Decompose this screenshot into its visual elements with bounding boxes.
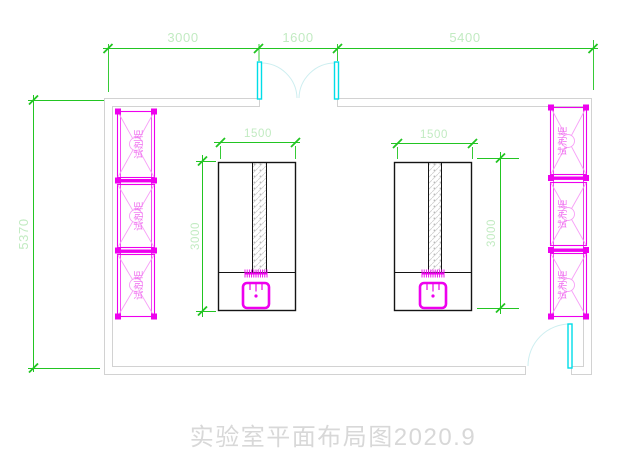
cabinet-post bbox=[583, 105, 589, 111]
cabinet-post bbox=[115, 314, 121, 320]
sink-faucets bbox=[250, 284, 262, 292]
cabinet-separator bbox=[118, 250, 154, 253]
cabinet-post bbox=[583, 314, 589, 320]
single-door-bottom-right bbox=[528, 324, 572, 368]
drawing-title: 实验室平面布局图2020.9 bbox=[190, 424, 476, 451]
cabinet-post bbox=[583, 175, 589, 181]
dim-extension-lines bbox=[109, 40, 594, 92]
left-wall bbox=[105, 98, 113, 375]
door-swing-arc bbox=[299, 63, 335, 98]
cabinet-post bbox=[548, 105, 554, 111]
cabinet-post bbox=[548, 314, 554, 320]
dim-text-top-right: 5400 bbox=[449, 30, 480, 45]
cabinet-post bbox=[115, 248, 121, 254]
sink-drain bbox=[254, 294, 257, 297]
sink-drain bbox=[431, 294, 434, 297]
right-wall bbox=[584, 98, 592, 375]
door-leaf bbox=[258, 62, 262, 99]
sink-symbol bbox=[420, 270, 446, 309]
lab-bench-left bbox=[219, 163, 296, 311]
bottom-wall bbox=[104, 366, 592, 375]
cabinet-post bbox=[151, 178, 157, 184]
dim-text-bench-depth: 3000 bbox=[190, 222, 202, 250]
cabinet-separator bbox=[551, 249, 586, 252]
cabinet-post bbox=[548, 175, 554, 181]
room-walls bbox=[104, 98, 592, 375]
cabinet-post bbox=[115, 178, 121, 184]
cabinet-post bbox=[151, 109, 157, 115]
sink-faucets bbox=[427, 284, 439, 292]
dim-text-bench-width: 1500 bbox=[244, 128, 272, 140]
dimension-bench-right: 1500 3000 bbox=[391, 129, 519, 314]
sink-symbol bbox=[243, 270, 269, 309]
cabinet-post bbox=[115, 109, 121, 115]
dim-line bbox=[203, 143, 301, 318]
double-entry-door bbox=[258, 62, 339, 99]
cabinet-label: 试剂柜 bbox=[133, 129, 145, 159]
top-wall bbox=[104, 98, 592, 107]
cabinet-label: 试剂柜 bbox=[557, 199, 569, 229]
dim-text-bench-width: 1500 bbox=[420, 129, 448, 141]
dimension-room-height: 5370 bbox=[16, 95, 104, 373]
bench-service-strip bbox=[253, 163, 266, 272]
dimension-bench-left: 1500 3000 bbox=[190, 128, 300, 317]
dim-text-bench-depth: 3000 bbox=[486, 219, 498, 247]
cabinet-label: 试剂柜 bbox=[133, 270, 145, 300]
cabinet-post bbox=[151, 248, 157, 254]
cabinet-label: 试剂柜 bbox=[557, 126, 569, 156]
door-swing-arc bbox=[528, 324, 570, 366]
dim-text-room-height: 5370 bbox=[16, 218, 31, 249]
cabinet-label: 试剂柜 bbox=[133, 201, 145, 231]
dim-text-top-left: 3000 bbox=[167, 30, 198, 45]
lab-bench-right bbox=[395, 163, 472, 311]
door-leaf bbox=[568, 324, 572, 368]
dim-ticks bbox=[198, 138, 300, 316]
cabinet-post bbox=[151, 314, 157, 320]
cabinet-separator bbox=[118, 179, 154, 182]
door-leaf bbox=[335, 62, 339, 99]
dim-extension-lines bbox=[196, 146, 296, 312]
reagent-cabinets-left: 试剂柜 试剂柜 试剂柜 bbox=[115, 109, 157, 320]
dimension-top: 3000 1600 5400 bbox=[103, 30, 598, 92]
cad-floor-plan: 试剂柜 试剂柜 试剂柜 bbox=[0, 0, 619, 469]
door-swing-arc bbox=[261, 63, 297, 98]
cabinet-label: 试剂柜 bbox=[557, 270, 569, 300]
bench-service-strip bbox=[429, 163, 442, 272]
cabinet-post bbox=[548, 247, 554, 253]
dim-text-top-middle: 1600 bbox=[282, 30, 313, 45]
cabinet-separator bbox=[551, 177, 586, 180]
cabinet-post bbox=[583, 247, 589, 253]
dim-extension-lines bbox=[28, 101, 104, 369]
reagent-cabinets-right: 试剂柜 试剂柜 试剂柜 bbox=[548, 105, 589, 320]
